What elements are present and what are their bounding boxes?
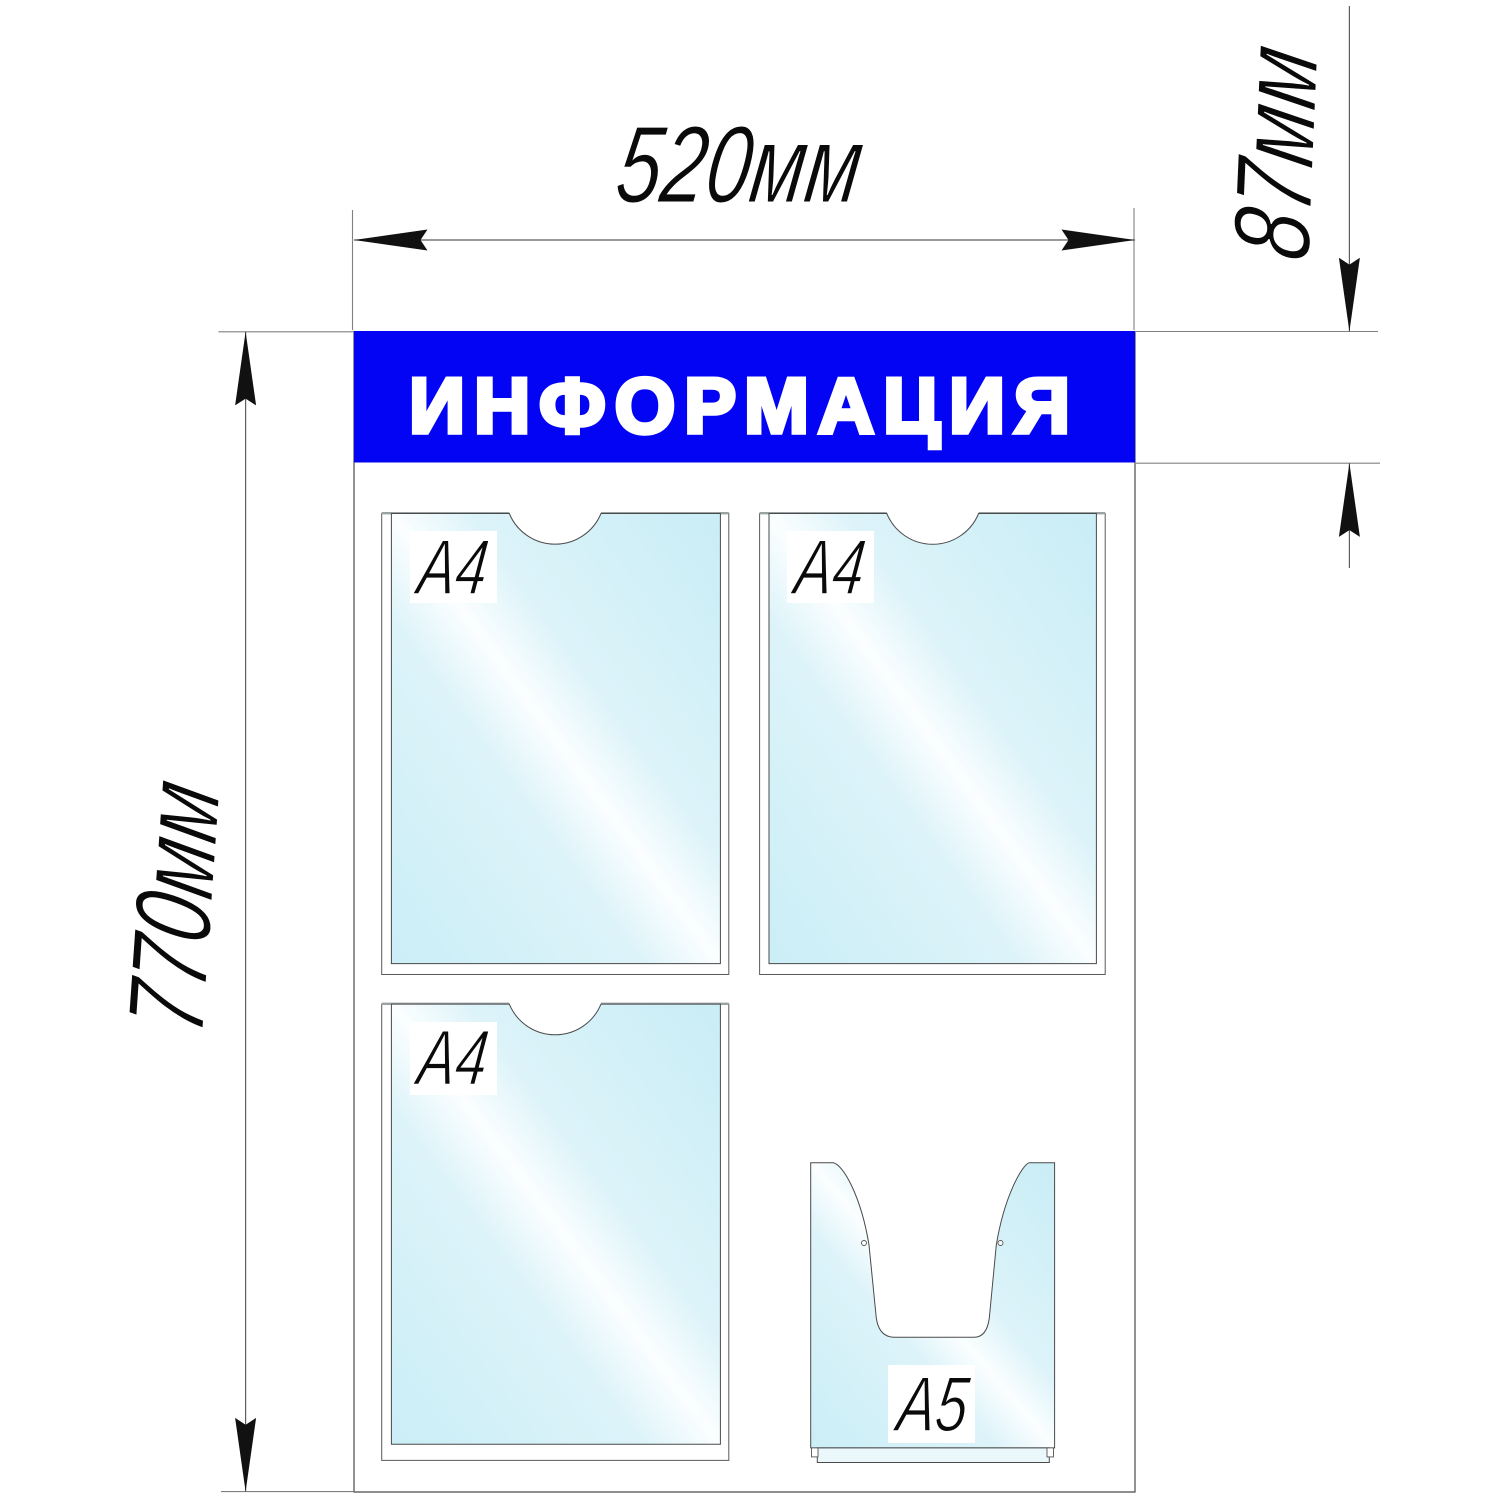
svg-text:A4: A4: [788, 523, 871, 611]
svg-text:87мм: 87мм: [1212, 36, 1342, 268]
svg-text:520мм: 520мм: [610, 104, 871, 225]
svg-text:A4: A4: [411, 523, 494, 611]
svg-text:770мм: 770мм: [106, 770, 243, 1043]
svg-text:A5: A5: [890, 1360, 974, 1448]
svg-text:A4: A4: [411, 1014, 494, 1102]
